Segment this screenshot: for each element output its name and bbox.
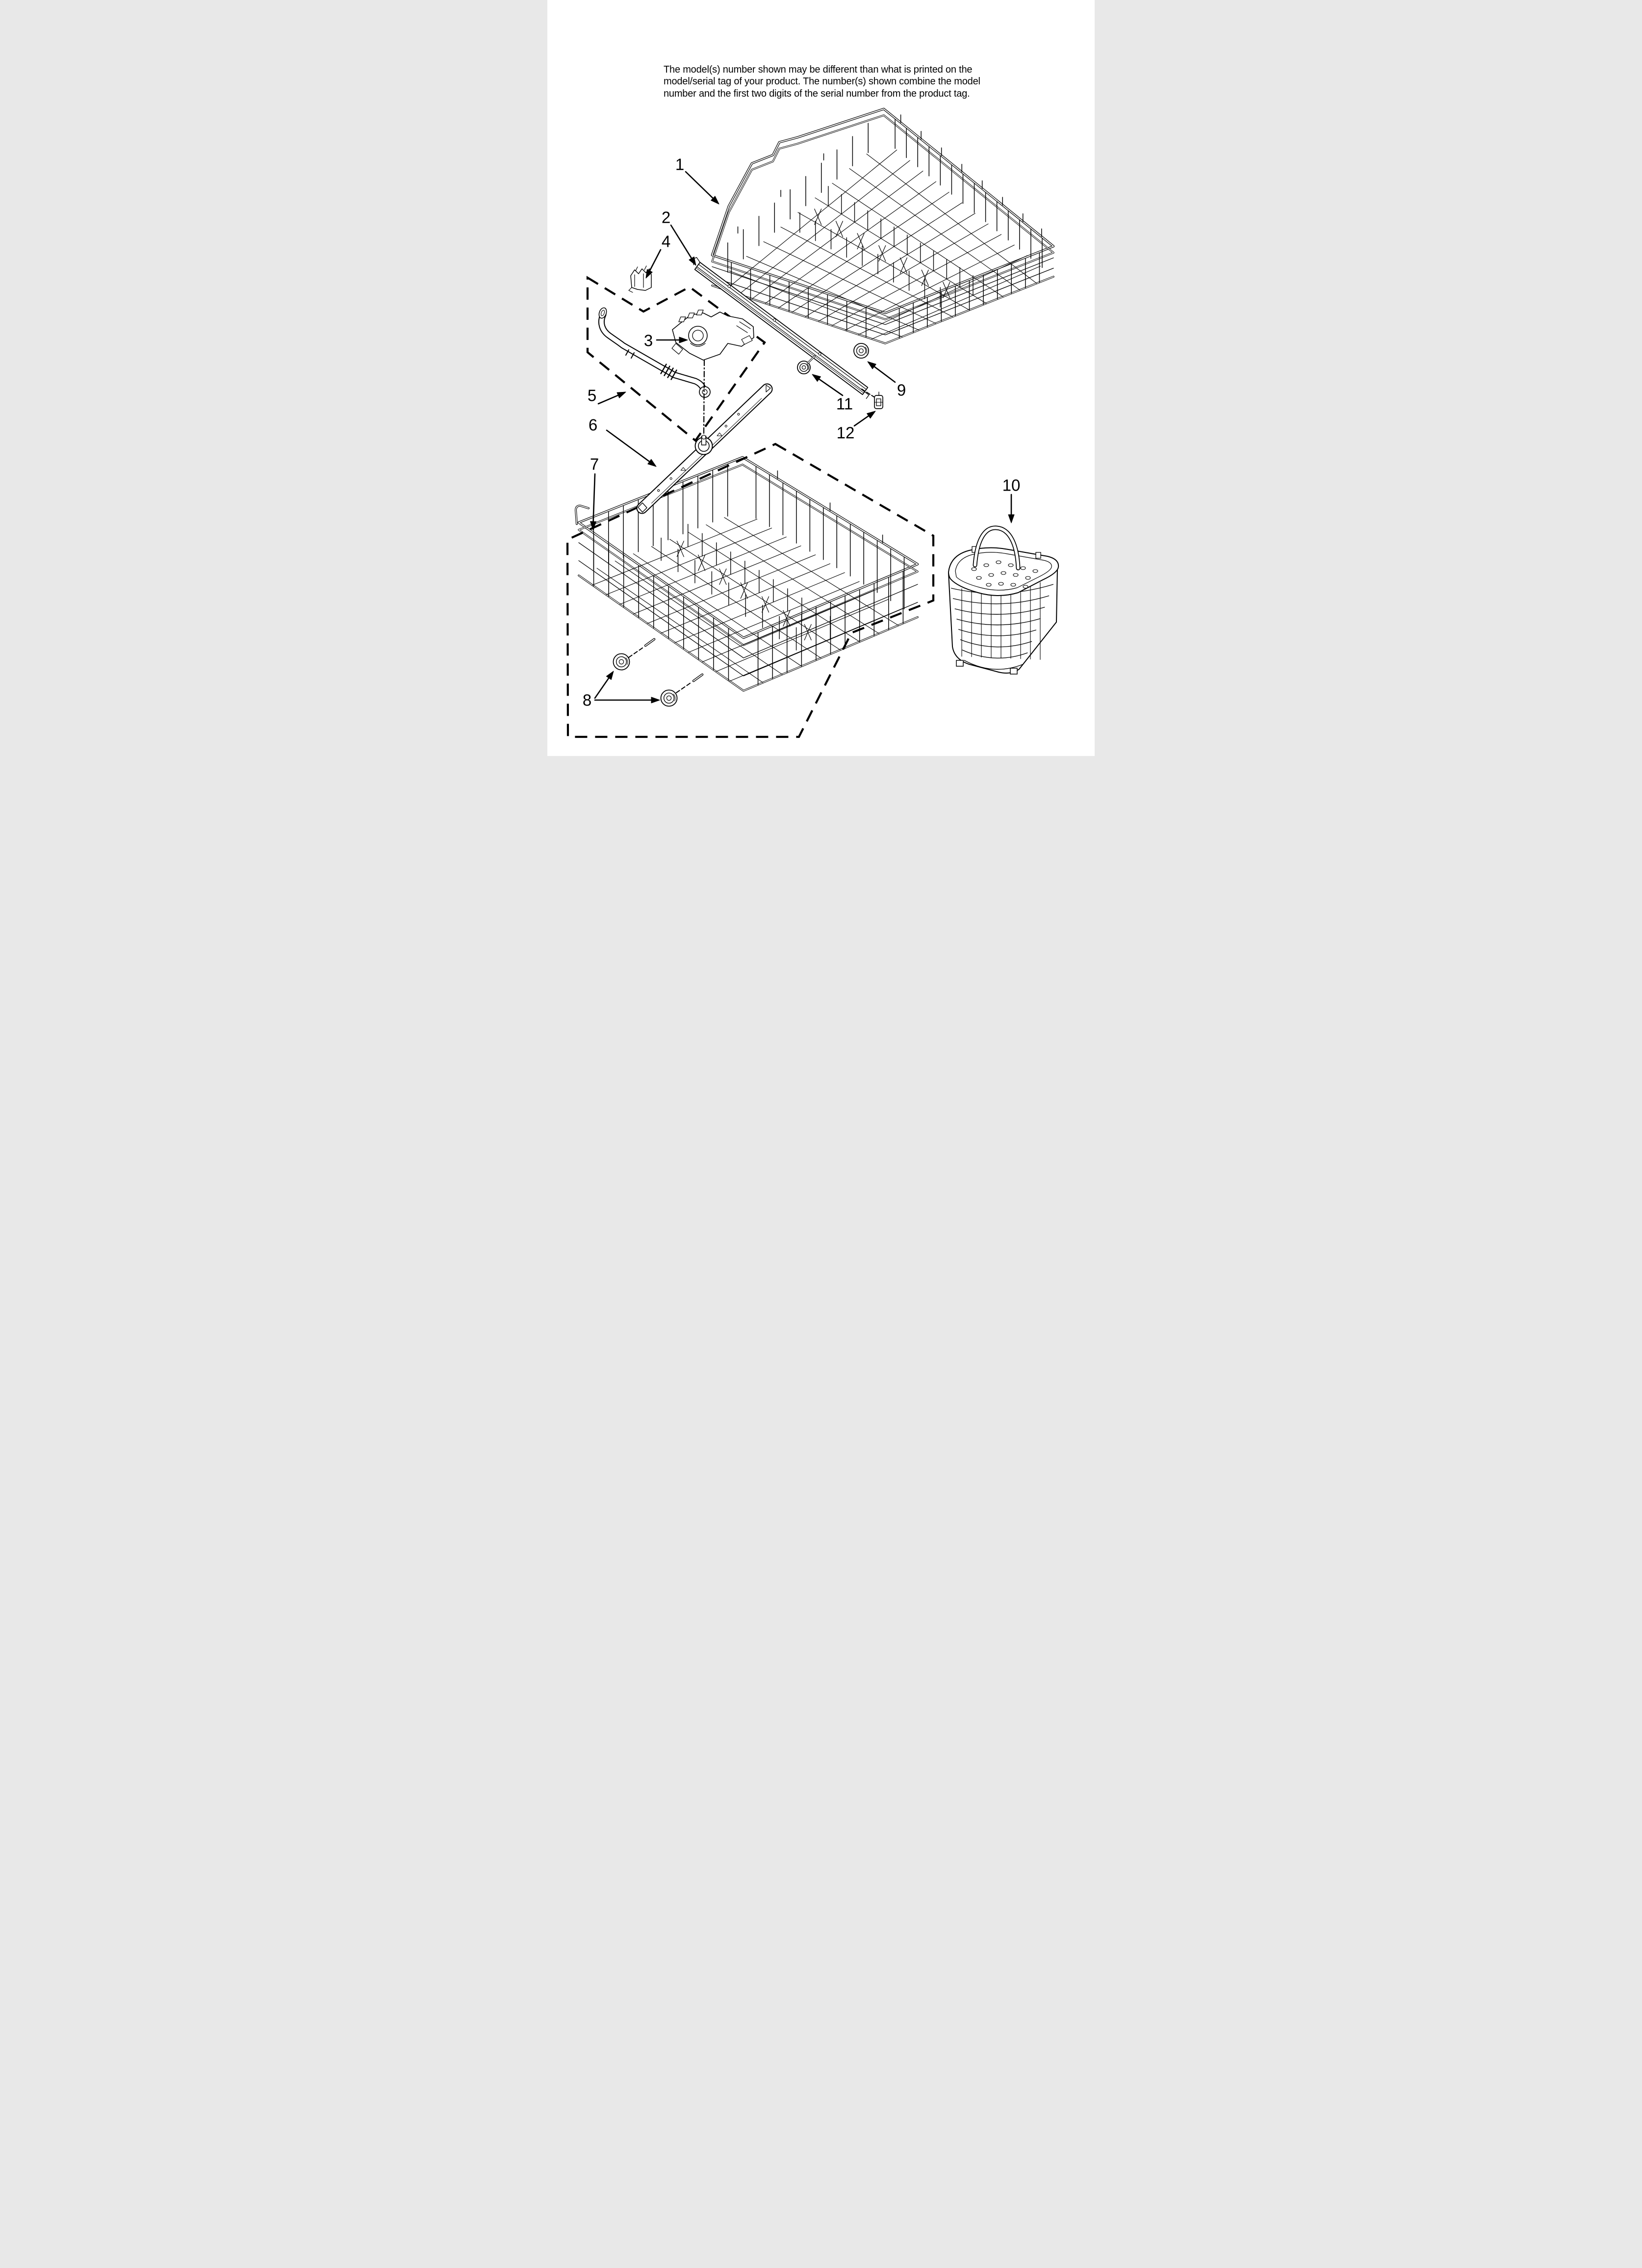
callout-arrow-line [854, 416, 869, 426]
callout-8: 8 [583, 671, 660, 709]
callout-number-12: 12 [837, 424, 855, 442]
callout-number-10: 10 [1002, 476, 1021, 495]
callout-4: 4 [646, 233, 670, 279]
callout-arrow-line [874, 366, 895, 382]
callout-number-7: 7 [590, 455, 599, 473]
callout-10: 10 [1002, 476, 1021, 523]
callout-arrowhead [606, 671, 614, 679]
callout-arrow-line [595, 678, 609, 698]
callout-5: 5 [588, 387, 626, 405]
callout-number-9: 9 [897, 381, 906, 399]
callout-number-1: 1 [675, 156, 684, 174]
dashed-box-lower-rack-assembly [567, 444, 933, 737]
callout-arrowhead [1008, 515, 1014, 523]
lower-rack-wheel-rear [661, 690, 677, 706]
lower-rack-wheel-front [614, 654, 630, 670]
callout-arrowhead [651, 697, 660, 703]
parts-diagram-page: The model(s) number shown may be differe… [547, 0, 1095, 756]
lower-spray-arm [638, 385, 770, 512]
callout-arrow-line [598, 395, 618, 404]
callout-1: 1 [675, 156, 719, 205]
callout-number-3: 3 [644, 332, 653, 350]
callout-arrow-line [819, 379, 843, 395]
callout-number-2: 2 [662, 209, 670, 227]
track-roller-11 [797, 356, 815, 374]
callout-arrow-line [607, 430, 649, 462]
callout-9: 9 [868, 362, 906, 399]
center-axis-line [704, 360, 704, 435]
silverware-basket [949, 528, 1058, 674]
spray-tower-mount-bracket [672, 310, 754, 360]
callout-number-4: 4 [662, 233, 670, 251]
callout-number-6: 6 [589, 416, 597, 434]
callout-arrowhead [867, 411, 875, 418]
upper-track-roller-9 [854, 343, 869, 358]
callout-number-5: 5 [588, 387, 596, 405]
callout-arrow-line [686, 172, 713, 198]
dishwasher-rack-parts-diagram: 124356789101112 [547, 0, 1095, 756]
upper-dishrack [712, 109, 1053, 343]
callout-arrowhead [868, 362, 876, 369]
callout-arrowhead [812, 374, 821, 382]
callout-12: 12 [837, 411, 875, 442]
callout-arrow-line [650, 250, 661, 271]
callout-number-11: 11 [836, 395, 853, 413]
callout-arrow-line [671, 225, 692, 259]
track-stop-clip-12 [874, 392, 883, 409]
callout-arrowhead [648, 459, 656, 467]
callout-arrow-line [593, 474, 595, 521]
callout-arrowhead [617, 392, 626, 398]
callout-number-8: 8 [583, 691, 591, 709]
